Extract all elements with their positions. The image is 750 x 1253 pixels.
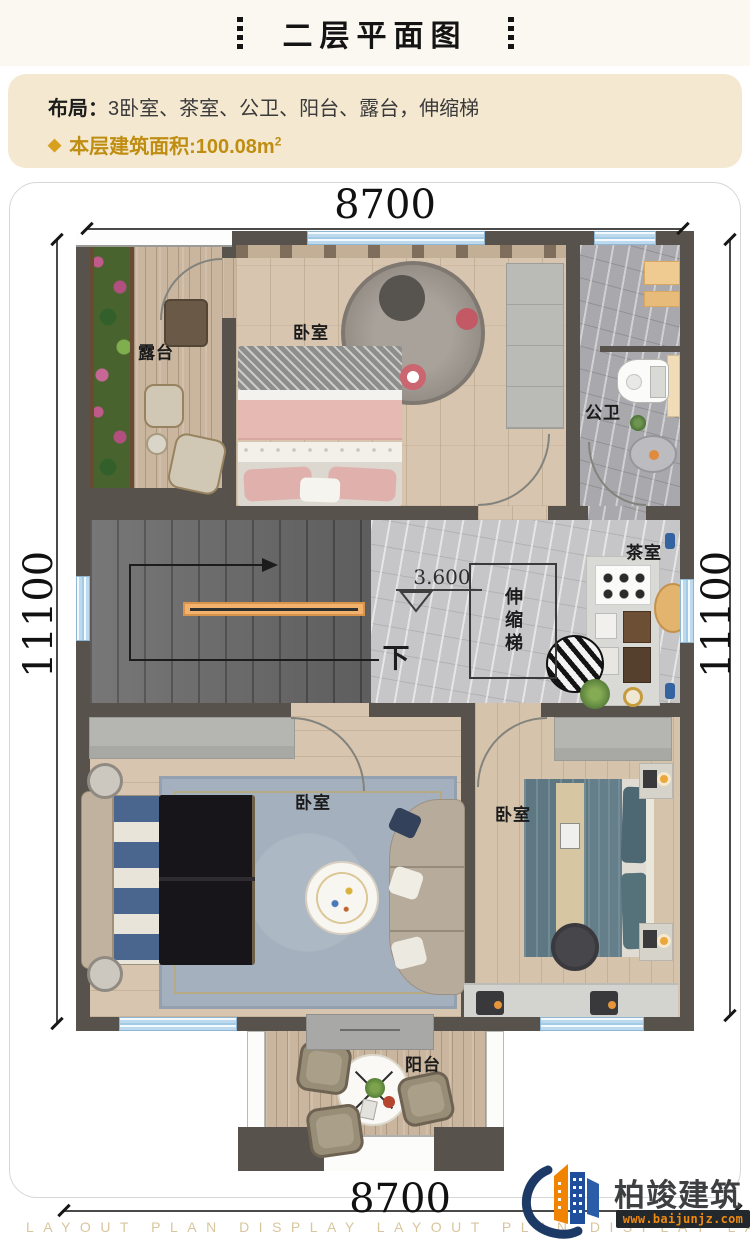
window-left [76,576,90,641]
white-pillow [300,477,341,502]
tea-cup [595,613,617,639]
desk-item [494,1001,502,1009]
balcony-label: 阳台 [405,1051,441,1076]
retractable-stair-label: 伸缩梯 [500,587,526,656]
nightstand-item [643,930,657,948]
logo-name: 柏竣建筑 [614,1170,742,1215]
bed-headboard [81,791,113,969]
stair-arrow-icon [262,558,278,572]
down-label: 下 [383,637,410,676]
page-title: 二层平面图 [283,11,468,55]
decor-vase [665,683,675,699]
bedroom-top-label: 卧室 [293,319,329,344]
bathroom-label: 公卫 [585,399,621,424]
bed-dark-duvet [159,795,255,965]
toilet-tank [650,366,666,398]
sink-drain [649,450,659,460]
door-gap-terrace [222,258,236,318]
nightstand [639,763,673,799]
red-ring-cushion [400,364,426,390]
rug-pouf [379,275,425,321]
hall-plant [580,679,610,709]
terrace-label: 露台 [138,339,174,364]
balcony-wall-right [434,1127,504,1171]
bedroom-left-label: 卧室 [295,789,331,814]
balcony-rail-right [486,1031,504,1135]
bed-pink-blanket [238,400,402,440]
wardrobe-top-bedroom [506,263,564,429]
terrace-side-table [146,433,168,455]
balcony-rail-left [247,1031,265,1135]
table-plant [365,1078,385,1098]
company-logo: 柏竣建筑 www.baijunjz.com [518,1158,750,1253]
bed-top-bedroom [238,346,402,506]
balcony-chair [305,1102,365,1159]
nightstand-lamp [657,934,671,948]
terrace-chair [144,384,184,428]
elevation-triangle-icon [399,591,433,613]
coffee-table [305,861,379,935]
wardrobe-right-bedroom [554,717,672,761]
area-text: 本层建筑面积:100.08m2 [69,130,281,159]
bedroom-stool [551,923,599,971]
desk [464,983,678,1017]
door-gap-bathroom [588,506,646,520]
area-superscript: 2 [275,134,282,148]
logo-building-icon [518,1158,618,1244]
door-gap-bedroom-left [291,703,369,717]
bed-folded-blanket [238,346,402,390]
terrace-flower-bed [90,247,134,488]
bedside-lamp [87,763,123,799]
stair-direction-line [129,564,131,661]
tea-box [623,647,651,683]
nightstand-lamp [657,772,671,786]
door-gap-bedroom-top [478,506,548,520]
stair-handrail [183,602,365,616]
area-line: ◆ 本层建筑面积:100.08m2 [48,130,281,159]
balcony-door-track [340,1029,400,1031]
toilet [617,359,669,403]
white-pillow-edge [646,793,654,943]
wardrobe-left-bedroom [89,717,295,759]
bed-sheet [238,390,402,400]
title-dash-right-icon [508,17,514,49]
logo-url: www.baijunjz.com [623,1212,743,1226]
bedroom-right-label: 卧室 [495,801,531,826]
retractable-stair-box: 伸缩梯 [469,563,557,679]
stair-direction-line [129,659,379,661]
tea-stove [595,565,651,605]
decor-vase [665,533,675,549]
window-top-2 [594,231,656,245]
bed-pillows [113,795,161,965]
info-box: 布局：3卧室、茶室、公卫、阳台、露台，伸缩梯 ◆ 本层建筑面积:100.08m2 [8,74,742,168]
window-right [680,579,694,643]
tea-bowl [623,687,643,707]
layout-value: 3卧室、茶室、公卫、阳台、露台，伸缩梯 [108,98,479,120]
nightstand [639,923,673,961]
bed-dotted-sheet [238,442,402,462]
tea-tray [623,611,651,643]
red-cushion [456,308,478,330]
bathroom-partition [600,346,680,352]
layout-label: 布局： [48,98,108,120]
table-fruit [383,1096,395,1108]
duvet-seam [159,877,255,881]
desk-item [608,1001,616,1009]
tea-room-label: 茶室 [626,539,662,564]
window-bottom-1 [119,1017,237,1031]
toilet-bowl [626,374,642,390]
page: 二层平面图 布局：3卧室、茶室、公卫、阳台、露台，伸缩梯 ◆ 本层建筑面积:10… [0,0,750,1253]
nightstand-item [643,770,657,788]
layout-line: 布局：3卧室、茶室、公卫、阳台、露台，伸缩梯 [48,92,479,121]
window-bottom-2 [540,1017,644,1031]
bedside-lamp [87,956,123,992]
handrail-line [190,608,358,611]
logo-url-bar: www.baijunjz.com [616,1210,750,1228]
floor-plan-card: 3.600 下 伸缩梯 [9,182,741,1198]
window-top-1 [307,231,485,245]
diamond-bullet-icon: ◆ [48,135,61,155]
terrace-railing [76,231,232,247]
stair-direction-line [129,564,262,566]
bathroom-shelf [644,261,680,285]
title-dash-left-icon [237,17,243,49]
header: 二层平面图 [0,0,750,66]
bathroom-shelf [644,291,680,307]
balcony-sliding-door [306,1014,434,1050]
door-gap-bedroom-right [475,703,541,717]
bathroom-plant [630,415,646,431]
bed-frame-decor [560,823,580,849]
table-magazine [359,1099,378,1121]
bedroom-top-shelf [236,245,566,258]
elevation-value: 3.600 [413,565,470,589]
